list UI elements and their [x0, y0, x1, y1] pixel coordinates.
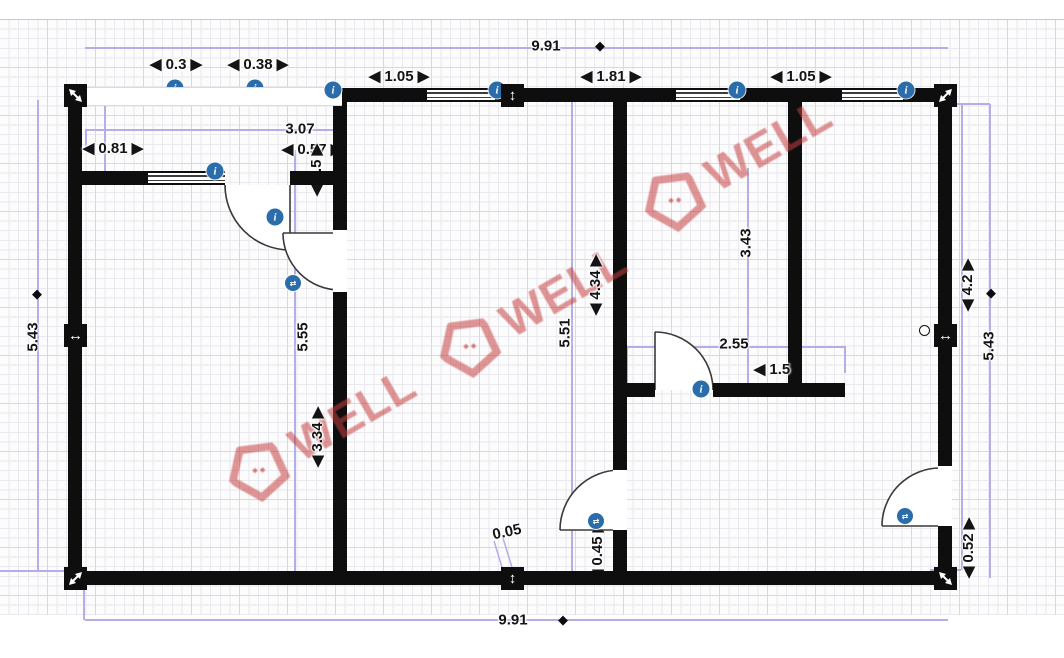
corner-handle-top-left[interactable]	[64, 84, 87, 107]
resize-nwse-icon	[68, 88, 83, 103]
dim-label-room1-width[interactable]: 3.07	[285, 121, 314, 138]
door-swing-icon-right[interactable]: ⇄	[897, 508, 913, 524]
corner-handle-bottom-right[interactable]	[934, 567, 957, 590]
wall-handle-top[interactable]: ↕	[501, 84, 524, 107]
resize-nwse-icon	[938, 571, 953, 586]
dim-diamond-top[interactable]: ◆	[595, 38, 605, 54]
door-swing-icon-room1[interactable]: ⇄	[285, 275, 301, 291]
dim-diamond-right[interactable]: ◆	[986, 285, 996, 301]
wall-interior-b1[interactable]	[82, 171, 148, 185]
door-swing-icon-mid[interactable]: ⇄	[588, 513, 604, 529]
dim-label-room2-15[interactable]: ◀ 1.5	[754, 360, 791, 378]
window-top-3[interactable]	[842, 88, 903, 102]
dim-label-top-total[interactable]: 9.91	[531, 38, 560, 55]
floor-plan-canvas[interactable]: i i i i i i i i i ⇄ ⇄ ⇄ ↕ ↕ ↔ ↔ 9.91 ◆ 9…	[0, 0, 1064, 658]
info-icon-door1[interactable]: i	[267, 209, 284, 226]
door-gap-c	[613, 470, 627, 530]
dim-label-room2-width[interactable]: 2.55	[719, 336, 748, 353]
dim-label-wall-343[interactable]: 3.43	[738, 228, 755, 257]
dim-label-seg-181[interactable]: ◀ 1.81 ▶	[581, 67, 642, 85]
wall-handle-bottom[interactable]: ↕	[501, 567, 524, 590]
info-icon-top-d[interactable]: i	[898, 82, 915, 99]
dim-label-right-total[interactable]: 5.43	[981, 331, 998, 360]
dim-label-seg-334[interactable]: ◀ 3.34 ▶	[308, 407, 326, 468]
wall-interior-e[interactable]	[788, 102, 802, 383]
wall-handle-left[interactable]: ↔	[64, 324, 87, 347]
dim-label-seg-081[interactable]: ◀ 0.81 ▶	[83, 139, 144, 157]
dim-label-seg-105-left[interactable]: ◀ 1.05 ▶	[369, 67, 430, 85]
resize-nesw-icon	[938, 88, 953, 103]
dim-diamond-left[interactable]: ◆	[32, 286, 42, 302]
wall-opening-band[interactable]	[86, 87, 342, 106]
dim-label-seg-105-right[interactable]: ◀ 1.05 ▶	[771, 67, 832, 85]
door-gap-right	[938, 466, 952, 526]
info-icon-window-interior[interactable]: i	[207, 163, 224, 180]
info-icon-door-room2[interactable]: i	[693, 381, 710, 398]
corner-handle-bottom-left[interactable]	[64, 567, 87, 590]
dim-label-seg-42[interactable]: ◀ 4.2 ▶	[958, 259, 976, 311]
resize-nesw-icon	[68, 571, 83, 586]
door-gap-a	[333, 230, 347, 292]
info-icon-top-a[interactable]: i	[325, 82, 342, 99]
dim-diamond-bottom[interactable]: ◆	[558, 612, 568, 628]
dim-label-seg-038[interactable]: ◀ 0.38 ▶	[228, 55, 289, 73]
point-marker-circle[interactable]	[919, 325, 930, 336]
dim-label-bottom-total[interactable]: 9.91	[498, 612, 527, 629]
wall-interior-d1[interactable]	[627, 383, 655, 397]
dim-label-room1-height[interactable]: 5.55	[295, 322, 312, 351]
dim-label-mid-height[interactable]: 5.51	[557, 318, 574, 347]
window-top-1[interactable]	[427, 88, 495, 102]
wall-interior-d2[interactable]	[713, 383, 845, 397]
info-icon-top-c[interactable]: i	[729, 82, 746, 99]
wall-handle-right[interactable]: ↔	[934, 324, 957, 347]
corner-handle-top-right[interactable]	[934, 84, 957, 107]
dim-label-seg-03[interactable]: ◀ 0.3 ▶	[150, 55, 202, 73]
wall-interior-b2[interactable]	[290, 171, 347, 185]
dim-label-seg-434[interactable]: ◀ 4.34 ▶	[586, 255, 604, 316]
dim-label-left-total[interactable]: 5.43	[25, 322, 42, 351]
